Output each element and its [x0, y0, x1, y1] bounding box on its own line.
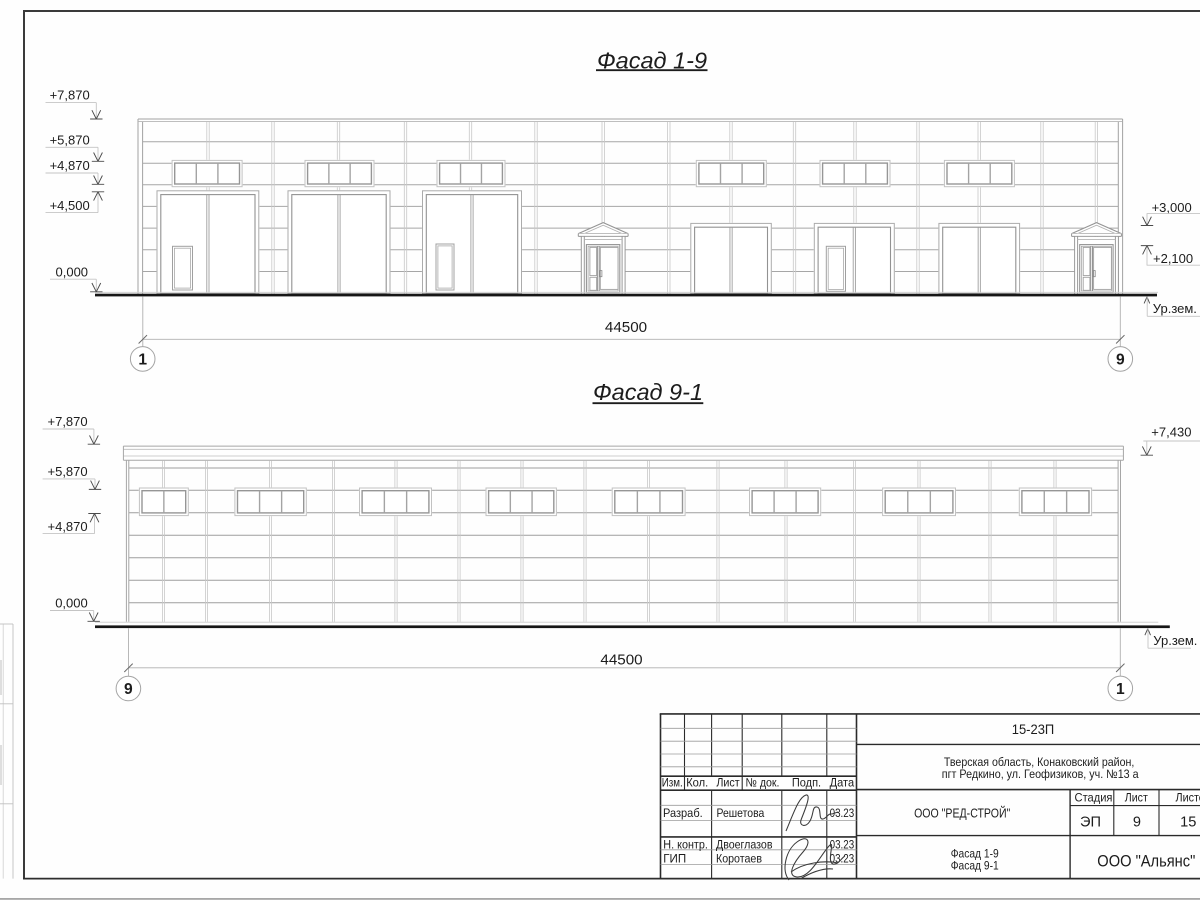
- svg-text:+7,870: +7,870: [48, 414, 88, 429]
- svg-text:9: 9: [124, 681, 133, 698]
- svg-text:Кол.: Кол.: [686, 776, 708, 790]
- svg-text:Решетова: Решетова: [717, 806, 765, 820]
- svg-text:+7,870: +7,870: [50, 88, 90, 103]
- svg-text:15-23П: 15-23П: [1012, 721, 1055, 737]
- svg-text:Разраб.: Разраб.: [663, 806, 703, 820]
- svg-text:Фасад 9-1: Фасад 9-1: [951, 858, 999, 872]
- svg-text:0,000: 0,000: [55, 596, 88, 611]
- svg-text:9: 9: [1133, 814, 1141, 830]
- svg-text:Коротаев: Коротаев: [716, 851, 762, 865]
- svg-text:+7,430: +7,430: [1151, 424, 1191, 439]
- svg-text:1: 1: [138, 352, 147, 369]
- svg-text:+4,870: +4,870: [48, 519, 88, 534]
- svg-text:ООО "РЕД-СТРОЙ": ООО "РЕД-СТРОЙ": [914, 805, 1011, 820]
- svg-text:ЭП: ЭП: [1080, 814, 1101, 830]
- svg-text:9: 9: [1116, 352, 1125, 369]
- svg-text:пгт Редкино, ул. Геофизиков, у: пгт Редкино, ул. Геофизиков, уч. №13 а: [942, 767, 1139, 781]
- svg-text:Двоеглазов: Двоеглазов: [716, 837, 773, 851]
- svg-text:44500: 44500: [605, 319, 647, 336]
- svg-text:Стадия: Стадия: [1075, 790, 1113, 804]
- svg-text:+4,500: +4,500: [50, 198, 90, 213]
- svg-text:03.23: 03.23: [830, 806, 855, 820]
- svg-text:+3,000: +3,000: [1152, 200, 1192, 215]
- svg-text:Подп.: Подп.: [792, 776, 821, 790]
- svg-text:Н. контр.: Н. контр.: [663, 837, 708, 851]
- svg-text:03.23: 03.23: [830, 837, 855, 851]
- svg-text:ГИП: ГИП: [663, 851, 686, 865]
- svg-text:№ док.: № док.: [746, 776, 780, 790]
- svg-text:Изм.: Изм.: [662, 776, 683, 790]
- svg-text:Ур.зем.: Ур.зем.: [1153, 633, 1197, 648]
- svg-text:Лист: Лист: [716, 776, 740, 790]
- svg-text:15: 15: [1180, 814, 1196, 830]
- svg-text:Дата: Дата: [830, 776, 855, 790]
- svg-text:+5,870: +5,870: [48, 464, 88, 479]
- svg-text:+2,100: +2,100: [1153, 251, 1193, 266]
- svg-text:0,000: 0,000: [56, 264, 89, 279]
- svg-text:Ур.зем.: Ур.зем.: [1153, 301, 1197, 316]
- svg-text:44500: 44500: [600, 652, 642, 669]
- svg-text:Листов: Листов: [1176, 790, 1200, 804]
- svg-text:+5,870: +5,870: [50, 133, 90, 148]
- svg-text:Фасад 9-1: Фасад 9-1: [593, 379, 703, 405]
- svg-text:Лист: Лист: [1125, 790, 1148, 804]
- svg-text:ООО "Альянс": ООО "Альянс": [1097, 851, 1195, 870]
- svg-text:1: 1: [1116, 681, 1125, 698]
- svg-text:+4,870: +4,870: [50, 158, 90, 173]
